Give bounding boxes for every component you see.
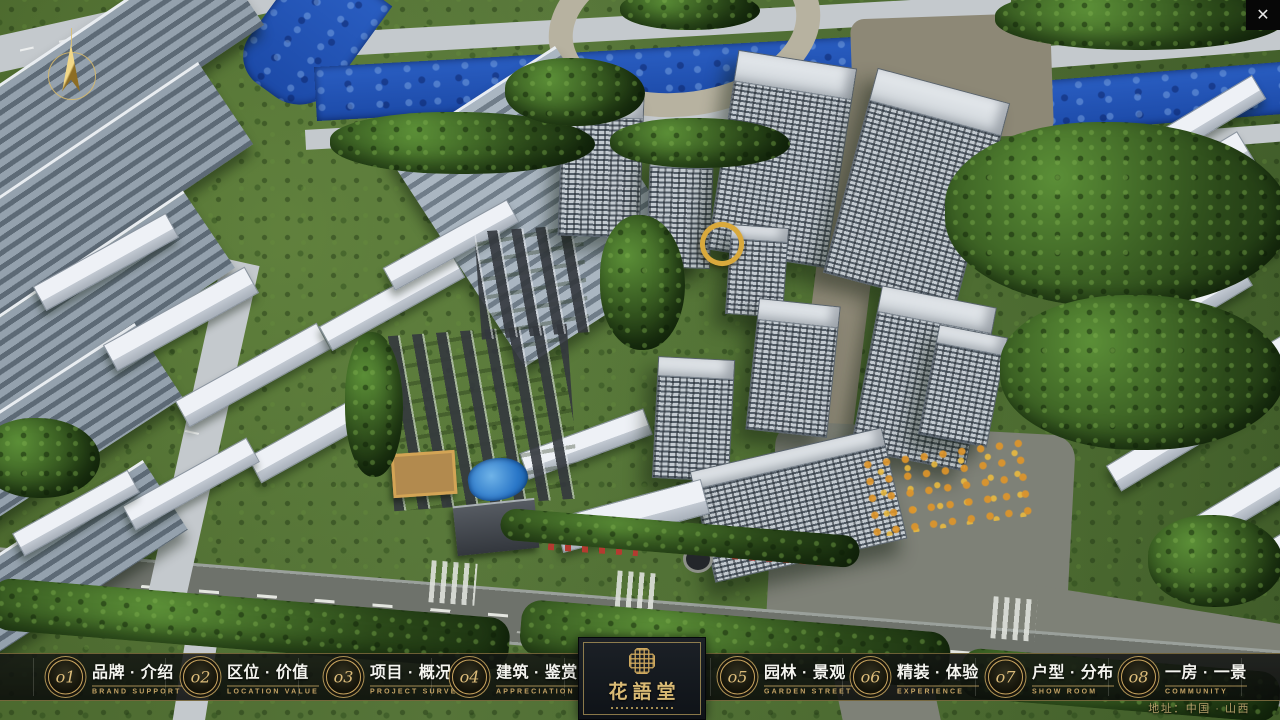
nav-item-subtitle: EXPERIENCE <box>897 686 979 696</box>
item-number: o4 <box>460 669 480 685</box>
tree-cluster <box>1148 515 1280 607</box>
item-number-badge: o2 <box>183 660 218 695</box>
address-label: 地址：中国 · 山西 <box>1148 700 1250 716</box>
brand-seal-icon <box>629 648 655 674</box>
tree-cluster <box>345 332 403 477</box>
courtyard-building <box>391 450 458 498</box>
nav-item-title: 区位 · 价值 <box>227 659 319 683</box>
nav-item-garden-landscape[interactable]: o5 园林 · 景观GARDEN STREET <box>720 659 853 696</box>
close-icon: ✕ <box>1256 5 1269 25</box>
nav-divider <box>710 658 711 696</box>
tree-cluster <box>945 122 1280 307</box>
nav-item-title: 户型 · 分布 <box>1032 659 1114 683</box>
nav-item-subtitle: LOCATION VALUE <box>227 686 319 696</box>
tower <box>745 298 840 438</box>
item-number-badge: o7 <box>988 660 1023 695</box>
brand-logo-panel[interactable]: 花語堂 <box>578 637 706 720</box>
item-number-badge: o6 <box>853 660 888 695</box>
nav-item-title: 项目 · 概况 <box>370 659 464 683</box>
item-number-badge: o5 <box>720 660 755 695</box>
nav-item-architecture[interactable]: o4 建筑 · 鉴赏APPRECIATION <box>452 659 578 696</box>
compass-north-icon <box>44 28 100 104</box>
nav-item-location-value[interactable]: o2 区位 · 价值LOCATION VALUE <box>183 659 319 696</box>
nav-divider <box>33 658 34 696</box>
nav-item-floorplans[interactable]: o7 户型 · 分布SHOW ROOM <box>988 659 1114 696</box>
villa-quarter <box>474 224 589 339</box>
nav-item-experience[interactable]: o6 精装 · 体验EXPERIENCE <box>853 659 979 696</box>
nav-item-room-view[interactable]: o8 一房 · 一景COMMUNITY <box>1121 659 1247 696</box>
brand-name: 花語堂 <box>608 677 680 704</box>
tree-cluster <box>600 215 685 350</box>
compass-stem <box>71 28 72 46</box>
nav-item-subtitle: BRAND SUPPORT <box>92 686 182 696</box>
aerial-masterplan-render <box>0 0 1280 720</box>
crosswalk <box>990 596 1037 641</box>
item-number: o8 <box>1129 669 1149 685</box>
brand-tagline-rule <box>611 707 673 709</box>
nav-item-title: 建筑 · 鉴赏 <box>496 659 578 683</box>
close-button[interactable]: ✕ <box>1246 0 1280 30</box>
tree-cluster <box>505 58 645 126</box>
nav-item-subtitle: APPRECIATION <box>496 686 578 696</box>
tree-cluster <box>610 118 790 168</box>
nav-item-brand-intro[interactable]: o1 品牌 · 介绍BRAND SUPPORT <box>48 659 182 696</box>
item-number-badge: o8 <box>1121 660 1156 695</box>
tree-cluster <box>1000 295 1280 450</box>
nav-item-subtitle: PROJECT SURVEY <box>370 686 464 696</box>
item-number-badge: o3 <box>326 660 361 695</box>
item-number-badge: o4 <box>452 660 487 695</box>
nav-item-title: 园林 · 景观 <box>764 659 853 683</box>
item-number: o1 <box>56 669 76 685</box>
item-number: o7 <box>996 669 1016 685</box>
nav-item-title: 精装 · 体验 <box>897 659 979 683</box>
nav-item-title: 一房 · 一景 <box>1165 659 1247 683</box>
item-number: o6 <box>861 669 881 685</box>
item-number: o5 <box>728 669 748 685</box>
item-number: o2 <box>191 669 211 685</box>
crosswalk <box>428 560 477 606</box>
nav-item-project-survey[interactable]: o3 项目 · 概况PROJECT SURVEY <box>326 659 464 696</box>
nav-item-subtitle: COMMUNITY <box>1165 686 1247 696</box>
nav-item-subtitle: SHOW ROOM <box>1032 686 1114 696</box>
item-number: o3 <box>334 669 354 685</box>
nav-item-title: 品牌 · 介绍 <box>92 659 182 683</box>
nav-item-subtitle: GARDEN STREET <box>764 686 853 696</box>
item-number-badge: o1 <box>48 660 83 695</box>
